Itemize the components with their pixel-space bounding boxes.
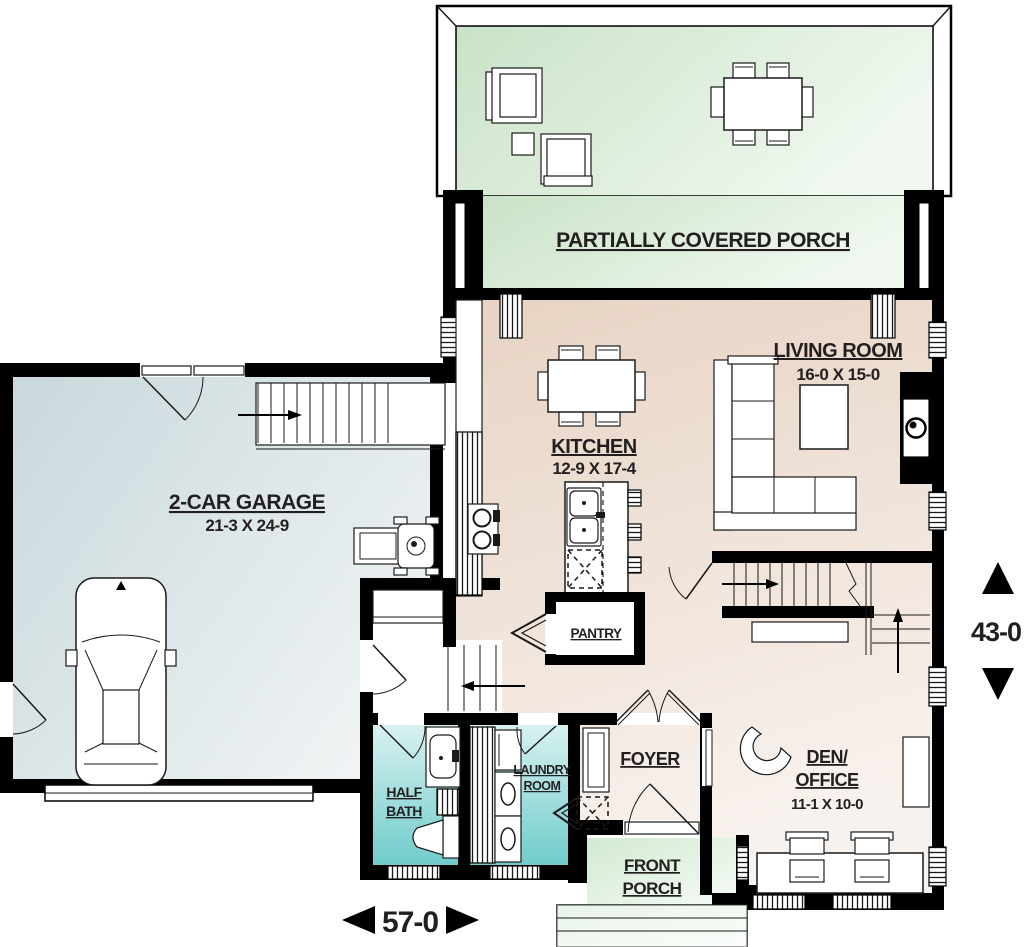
mudroom-garage-door: [373, 645, 406, 694]
foyer-bench: [583, 728, 609, 792]
window-den-front-2: [833, 895, 891, 909]
height-dim-label: 43-0: [971, 617, 1021, 647]
living-room-dims: 16-0 X 15-0: [796, 365, 879, 384]
bath-cabinet: [437, 789, 459, 815]
window-kitchen-top: [500, 294, 522, 338]
dim-arrow-down-icon: [982, 668, 1014, 700]
half-bath-label-2: BATH: [386, 803, 422, 819]
stair-shelf: [752, 622, 848, 642]
front-porch-label-1: FRONT: [624, 856, 681, 875]
porch-armchair-1: [486, 68, 542, 123]
dim-arrow-up-icon: [982, 562, 1014, 594]
porch-armchair-2: [541, 134, 592, 186]
bar-stool: [628, 490, 641, 506]
office-chair-1: [786, 832, 828, 854]
laundry-closet: [470, 727, 495, 863]
window-den-right-1: [929, 667, 946, 706]
laundry-label-2: ROOM: [524, 779, 561, 793]
window-living-right-2: [929, 492, 946, 530]
rear-porch: PARTIALLY COVERED PORCH: [437, 6, 951, 298]
garage-dims: 21-3 X 24-9: [205, 516, 288, 535]
window-living-right-1: [929, 322, 946, 358]
half-bath-label-1: HALF: [386, 784, 422, 800]
window-den-right-2: [929, 847, 946, 886]
window-den-porch: [737, 846, 748, 880]
porch-post-left: [443, 190, 483, 298]
bookshelf: [903, 737, 929, 807]
office-chair-2: [851, 832, 893, 854]
porch-post-right: [904, 190, 944, 298]
desk-monitor-2: [855, 860, 889, 882]
floor-plan: PARTIALLY COVERED PORCH: [0, 0, 1024, 947]
coffee-table: [800, 385, 848, 449]
desk: [757, 853, 923, 893]
bar-stool: [628, 557, 641, 573]
porch-label: PARTIALLY COVERED PORCH: [556, 229, 850, 252]
den-dims: 11-1 X 10-0: [791, 796, 863, 813]
bar-stool: [628, 524, 641, 540]
dim-arrow-left-icon: [342, 906, 375, 934]
sink-icon: [567, 488, 605, 546]
height-dimension: 43-0: [971, 562, 1021, 700]
garage-label: 2-CAR GARAGE: [169, 491, 326, 514]
kitchen-label: KITCHEN: [551, 436, 636, 458]
window-laundry-front: [490, 866, 540, 879]
kitchen-dims: 12-9 X 17-4: [552, 459, 636, 478]
width-dimension: 57-0: [342, 906, 479, 939]
car: [66, 578, 176, 785]
washer-icon: [495, 772, 521, 816]
mudroom-closet: [373, 590, 443, 623]
foyer-label: FOYER: [620, 749, 680, 769]
pantry-label: PANTRY: [571, 626, 622, 641]
floor-plan-svg: PARTIALLY COVERED PORCH: [0, 0, 1024, 947]
window-bath-front: [388, 866, 440, 879]
den-label-2: OFFICE: [796, 770, 859, 790]
dim-arrow-right-icon: [446, 906, 479, 934]
garage-stairs: [238, 383, 445, 449]
basement-steps-floor: [443, 640, 502, 713]
front-porch-label-2: PORCH: [623, 879, 682, 898]
living-room-label: LIVING ROOM: [774, 340, 903, 362]
desk-monitor-1: [790, 860, 824, 882]
stove-icon: [468, 504, 500, 554]
window-living-top: [871, 294, 895, 338]
laundry-label-1: LAUNDRY: [513, 763, 571, 777]
dryer-icon: [495, 816, 521, 862]
den-label-1: DEN/: [806, 747, 848, 767]
width-dim-label: 57-0: [382, 906, 438, 939]
fireplace-icon: [903, 399, 929, 457]
window-den-front-1: [753, 895, 805, 909]
porch-side-table: [512, 133, 534, 155]
bathroom-sink-icon: [426, 727, 460, 787]
